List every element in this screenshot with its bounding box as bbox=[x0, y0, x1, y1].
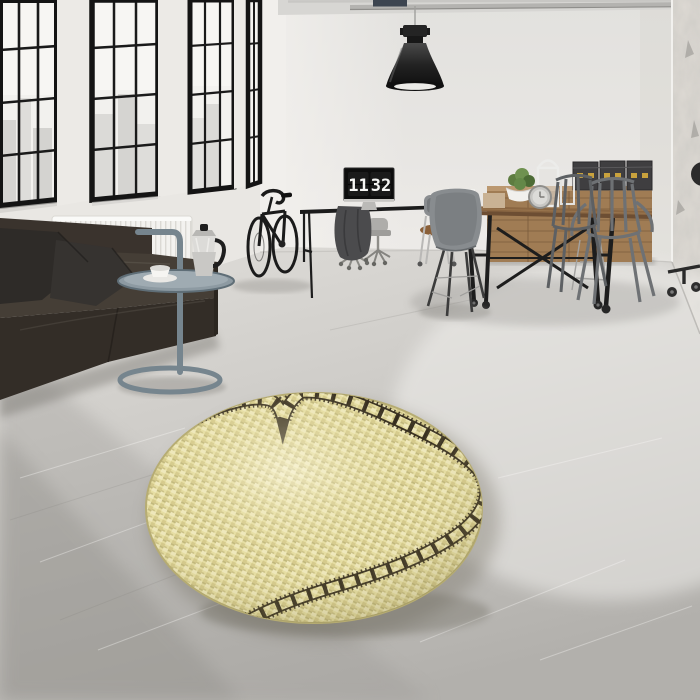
scene-canvas: 11 32 bbox=[0, 0, 700, 700]
monitor-stand bbox=[361, 202, 377, 210]
shell-chair-inner bbox=[435, 193, 477, 246]
window-pillar bbox=[158, 0, 190, 197]
window-pillar bbox=[57, 0, 92, 206]
window-panel-1 bbox=[0, 0, 57, 206]
window-panel-2 bbox=[92, 0, 158, 200]
window-panel-3 bbox=[190, 0, 234, 192]
loft-room-photo: 11 32 bbox=[0, 0, 700, 700]
shell-chair-shadow bbox=[419, 304, 491, 320]
window-panel-4 bbox=[248, 0, 260, 186]
lamp-neck bbox=[407, 36, 423, 44]
bicycle-shadow bbox=[232, 279, 312, 293]
clock-hours: 11 bbox=[348, 176, 368, 196]
monitor-chin bbox=[344, 199, 394, 202]
lamp-cap bbox=[403, 25, 427, 37]
factory-windows bbox=[0, 0, 260, 213]
lamp-diffuser bbox=[394, 83, 436, 90]
jacket-on-desk bbox=[334, 206, 371, 260]
rug-shading bbox=[146, 393, 482, 623]
wooden-box bbox=[483, 193, 505, 208]
clock-minutes: 32 bbox=[371, 176, 391, 196]
ceiling-fixture bbox=[373, 0, 407, 7]
chrome-table-clock bbox=[529, 186, 551, 208]
crank bbox=[279, 241, 286, 248]
